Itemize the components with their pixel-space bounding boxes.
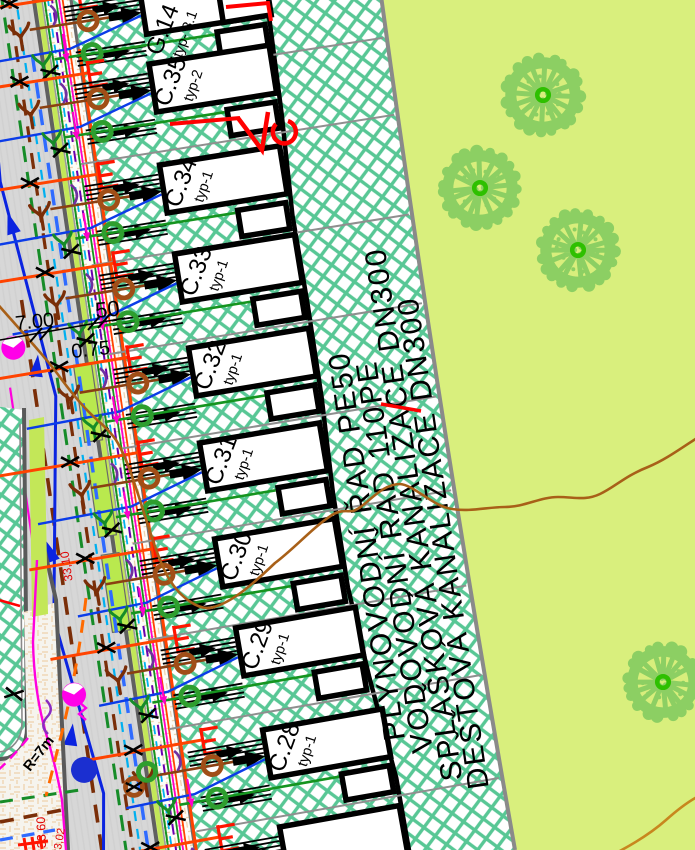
svg-text:0.75: 0.75 (70, 337, 111, 363)
